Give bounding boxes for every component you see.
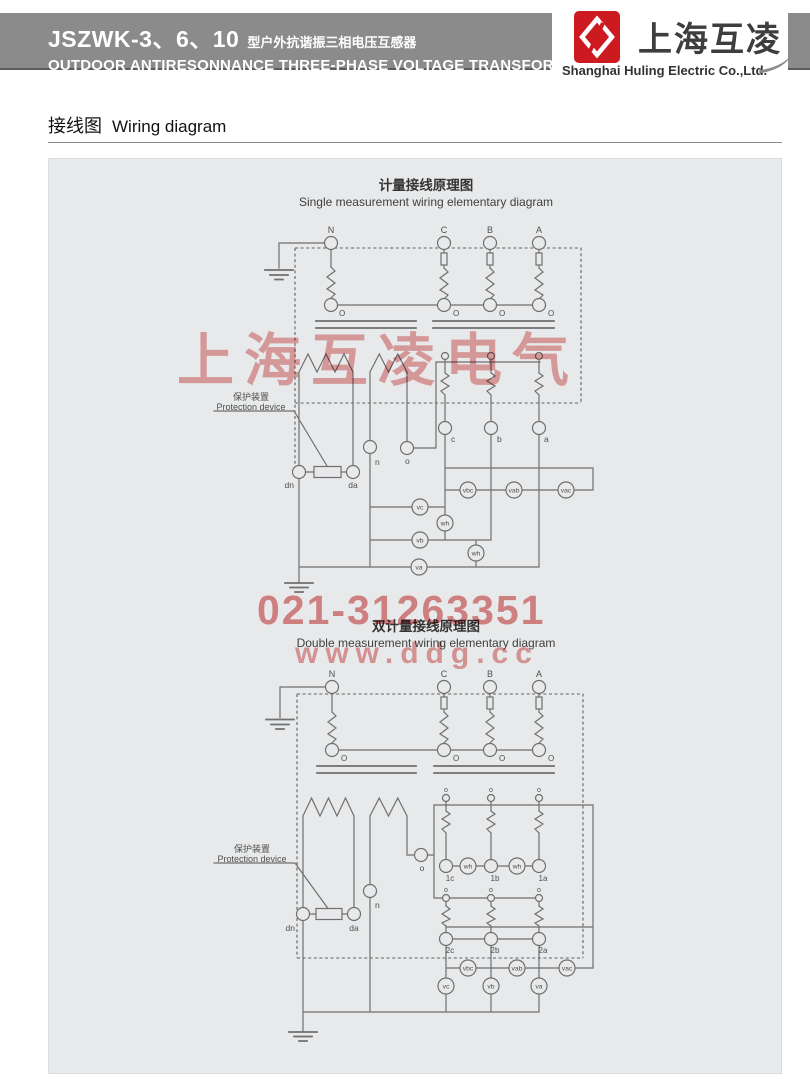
meter-vbc-label: vbc — [463, 488, 474, 495]
winding-O-label: O — [548, 754, 554, 763]
wiring-diagrams-svg: 计量接线原理图 Single measurement wiring elemen… — [49, 159, 783, 1075]
group2-o-label: o — [489, 887, 493, 894]
brand-name-cn: 上海互凌 — [638, 12, 782, 61]
terminal-A — [533, 237, 546, 250]
winding-end-node — [438, 744, 451, 757]
secondary-top-node — [488, 353, 495, 360]
catalog-page: JSZWK-3、6、10型户外抗谐振三相电压互感器 OUTDOOR ANTIRE… — [0, 0, 810, 1089]
terminal-1a — [533, 860, 546, 873]
terminal-c-label: c — [451, 434, 456, 444]
terminal-a-label: a — [544, 434, 549, 444]
meter-wh-label: wh — [463, 864, 473, 871]
meter-vab-label: vab — [512, 966, 523, 973]
diagram2-ground2-icon — [289, 1032, 317, 1041]
group1-o-label: o — [444, 787, 448, 794]
meter-vab-label: vab — [509, 488, 520, 495]
company-logo-icon — [574, 11, 620, 63]
meter-va-label: va — [415, 565, 422, 572]
winding-end-node — [326, 744, 339, 757]
meter-vb-label: vb — [487, 984, 494, 991]
terminal-2b-label: 2b — [491, 946, 500, 955]
group2-o-label: o — [444, 887, 448, 894]
winding-end-node — [484, 744, 497, 757]
terminal-2c — [440, 933, 453, 946]
group1-top-node — [536, 795, 543, 802]
secondary-top-node — [442, 353, 449, 360]
diagram2-ground-icon — [266, 720, 294, 730]
meter-wh-label: wh — [471, 551, 481, 558]
winding-O-label: O — [339, 309, 345, 318]
diagram1-title-en: Single measurement wiring elementary dia… — [299, 195, 553, 209]
group2-o-label: o — [537, 887, 541, 894]
fuse-icon — [487, 253, 493, 265]
terminal-n — [364, 441, 377, 454]
group1-o-label: o — [489, 787, 493, 794]
wiring-diagram-panel: 计量接线原理图 Single measurement wiring elemen… — [48, 158, 782, 1074]
fuse-icon — [536, 253, 542, 265]
terminal-o-label: o — [420, 863, 425, 873]
terminal-C-label: C — [441, 669, 448, 679]
diagram2-title-en: Double measurement wiring elementary dia… — [297, 636, 556, 650]
diagram2-core-lines — [317, 766, 554, 773]
terminal-1a-label: 1a — [539, 874, 548, 883]
terminal-2a-label: 2a — [539, 946, 548, 955]
section-rule — [48, 142, 782, 143]
terminal-n — [364, 885, 377, 898]
terminal-o — [415, 849, 428, 862]
terminal-A — [533, 681, 546, 694]
winding-end-node — [325, 299, 338, 312]
diamond-logo-icon — [574, 11, 620, 63]
logo-panel: 上海互凌 Shanghai Huling Electric Co.,Ltd. — [552, 0, 788, 92]
terminal-dn-label: dn — [286, 923, 296, 933]
terminal-da-label: da — [349, 923, 359, 933]
terminal-1c-label: 1c — [446, 874, 454, 883]
fuse-icon — [441, 253, 447, 265]
meter-vc-label: vc — [417, 505, 424, 512]
protection-device-box — [314, 467, 341, 478]
group2-top-node — [443, 895, 450, 902]
terminal-B-label: B — [487, 669, 493, 679]
model-number: JSZWK-3、6、10 — [48, 26, 239, 52]
terminal-A-label: A — [536, 669, 542, 679]
terminal-b — [485, 422, 498, 435]
meter-wh-label: wh — [512, 864, 522, 871]
group1-top-node — [488, 795, 495, 802]
diagram1-ground-icon — [265, 270, 293, 280]
terminal-b-label: b — [497, 434, 502, 444]
brand-name-en: Shanghai Huling Electric Co.,Ltd. — [562, 63, 788, 78]
terminal-N-label: N — [328, 225, 335, 235]
terminal-a — [533, 422, 546, 435]
terminal-dn — [293, 466, 306, 479]
terminal-o — [401, 442, 414, 455]
diagram1-single-measurement: 计量接线原理图 Single measurement wiring elemen… — [214, 177, 593, 592]
terminal-n-label: n — [375, 457, 380, 467]
fuse-icon — [487, 697, 493, 709]
terminal-o-label: o — [405, 456, 410, 466]
diagram1-core-lines — [316, 321, 554, 328]
group1-o-label: o — [537, 787, 541, 794]
section-title-cn: 接线图 — [48, 116, 102, 136]
terminal-c — [439, 422, 452, 435]
protection-label-cn: 保护装置 — [234, 843, 270, 854]
winding-end-node — [533, 299, 546, 312]
terminal-da — [348, 908, 361, 921]
terminal-2a — [533, 933, 546, 946]
terminal-da-label: da — [348, 480, 358, 490]
winding-end-node — [484, 299, 497, 312]
group2-top-node — [488, 895, 495, 902]
winding-O-label: O — [341, 754, 347, 763]
meter-wh-label: wh — [440, 521, 450, 528]
winding-O-label: O — [548, 309, 554, 318]
fuse-icon — [536, 697, 542, 709]
winding-end-node — [533, 744, 546, 757]
model-description-cn: 型户外抗谐振三相电压互感器 — [247, 35, 416, 50]
diagram2-double-measurement: 双计量接线原理图 Double measurement wiring eleme… — [214, 618, 593, 1041]
meter-vbc-label: vbc — [463, 966, 474, 973]
diagram1-ground2-icon — [285, 583, 313, 592]
section-title-en: Wiring diagram — [112, 117, 226, 136]
terminal-N — [326, 681, 339, 694]
group1-top-node — [443, 795, 450, 802]
terminal-C — [438, 681, 451, 694]
terminal-dn — [297, 908, 310, 921]
meter-vac-label: vac — [562, 966, 573, 973]
section-title: 接线图Wiring diagram — [48, 112, 226, 138]
winding-O-label: O — [499, 754, 505, 763]
terminal-da — [347, 466, 360, 479]
terminal-C-label: C — [441, 225, 448, 235]
secondary-top-node — [536, 353, 543, 360]
diagram1-wiring-lines — [214, 243, 593, 582]
terminal-N-label: N — [329, 669, 336, 679]
diagram1-title-cn: 计量接线原理图 — [379, 177, 474, 193]
terminal-n-label: n — [375, 900, 380, 910]
meter-vac-label: vac — [561, 488, 572, 495]
fuse-icon — [441, 697, 447, 709]
terminal-1b — [485, 860, 498, 873]
terminal-dn-label: dn — [285, 480, 295, 490]
meter-vb-label: vb — [416, 538, 423, 545]
protection-label-en: Protection device — [216, 402, 285, 412]
winding-O-label: O — [453, 754, 459, 763]
terminal-2b — [485, 933, 498, 946]
diagram2-title-cn: 双计量接线原理图 — [372, 618, 480, 634]
winding-end-node — [438, 299, 451, 312]
protection-label-cn: 保护装置 — [233, 391, 269, 402]
group2-top-node — [536, 895, 543, 902]
terminal-B-label: B — [487, 225, 493, 235]
protection-device-box — [316, 909, 342, 920]
terminal-N — [325, 237, 338, 250]
meter-vc-label: vc — [443, 984, 450, 991]
terminal-B — [484, 681, 497, 694]
meter-va-label: va — [535, 984, 542, 991]
terminal-2c-label: 2c — [446, 946, 454, 955]
winding-O-label: O — [453, 309, 459, 318]
terminal-B — [484, 237, 497, 250]
terminal-1c — [440, 860, 453, 873]
terminal-A-label: A — [536, 225, 542, 235]
terminal-1b-label: 1b — [491, 874, 500, 883]
protection-label-en: Protection device — [217, 854, 286, 864]
terminal-C — [438, 237, 451, 250]
winding-O-label: O — [499, 309, 505, 318]
